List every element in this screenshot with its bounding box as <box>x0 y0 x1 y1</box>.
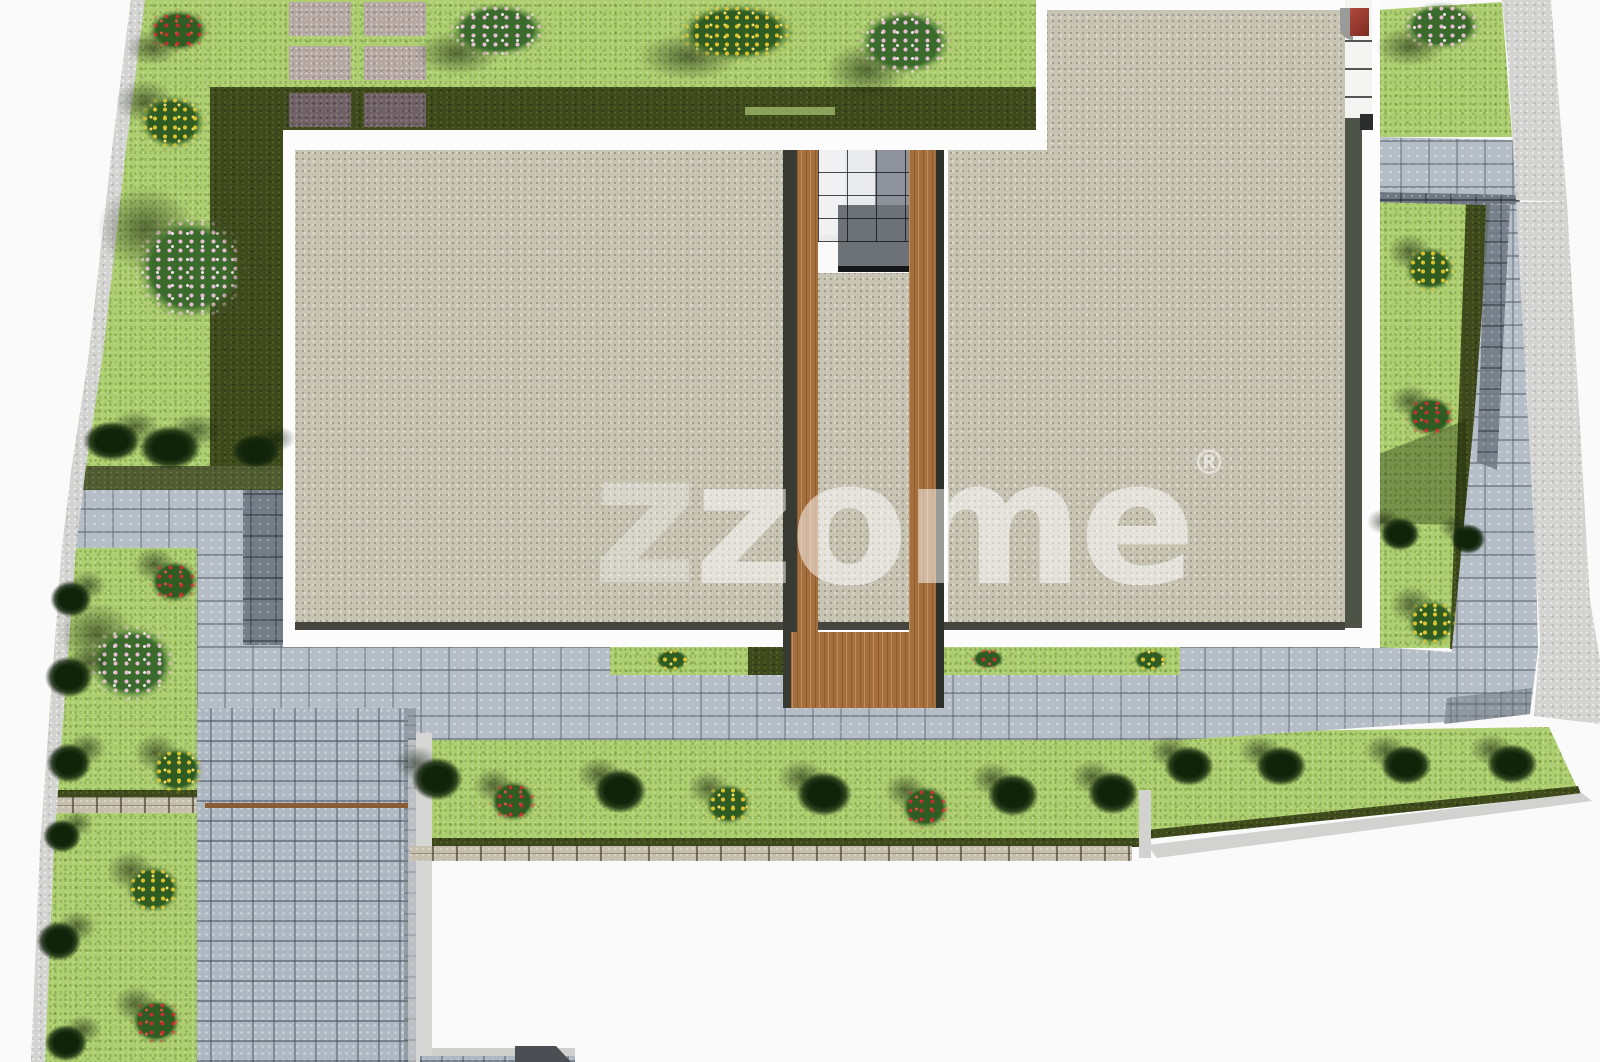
shrub <box>981 768 1045 822</box>
flower-bush-yellow <box>698 777 758 831</box>
flower-bush-pink <box>1392 0 1492 57</box>
shrub <box>789 766 859 822</box>
flower-bush-red <box>483 774 543 828</box>
flower-bush-pink <box>435 0 560 65</box>
flower-bush-red <box>139 3 217 58</box>
shrub <box>1081 766 1145 820</box>
shrub <box>41 738 97 788</box>
flower-bush-yellow <box>650 646 694 674</box>
shrub <box>39 1020 93 1062</box>
flower-bush-yellow <box>1128 646 1172 674</box>
vegetation-layer <box>0 0 1600 1062</box>
flower-bush-yellow <box>130 87 215 157</box>
flower-bush-yellow <box>1398 240 1462 298</box>
flower-bush-pink <box>120 201 260 336</box>
shrub <box>226 430 286 472</box>
shrub <box>1374 740 1438 790</box>
flower-bush-yellow <box>118 858 188 920</box>
flower-bush-yellow <box>1400 592 1464 652</box>
shrub <box>405 752 469 806</box>
shrub <box>38 815 86 857</box>
shrub <box>131 420 209 475</box>
shrub <box>1446 520 1490 558</box>
shrub <box>31 916 87 966</box>
flower-bush-red <box>143 554 205 609</box>
shrub <box>1375 513 1425 555</box>
flower-bush-red <box>124 992 188 1050</box>
shrub <box>1480 739 1544 789</box>
site-plan-canvas: zzome® <box>0 0 1600 1062</box>
shrub <box>1249 741 1313 791</box>
shrub <box>587 763 653 819</box>
shrub <box>45 576 97 622</box>
flower-bush-red <box>1399 390 1461 442</box>
flower-bush-pink <box>845 0 965 85</box>
flower-bush-yellow <box>144 740 210 800</box>
shrub <box>1158 741 1220 791</box>
flower-bush-yellow <box>662 0 812 70</box>
shrub <box>39 651 99 703</box>
flower-bush-red <box>967 646 1009 672</box>
flower-bush-red <box>894 779 956 835</box>
